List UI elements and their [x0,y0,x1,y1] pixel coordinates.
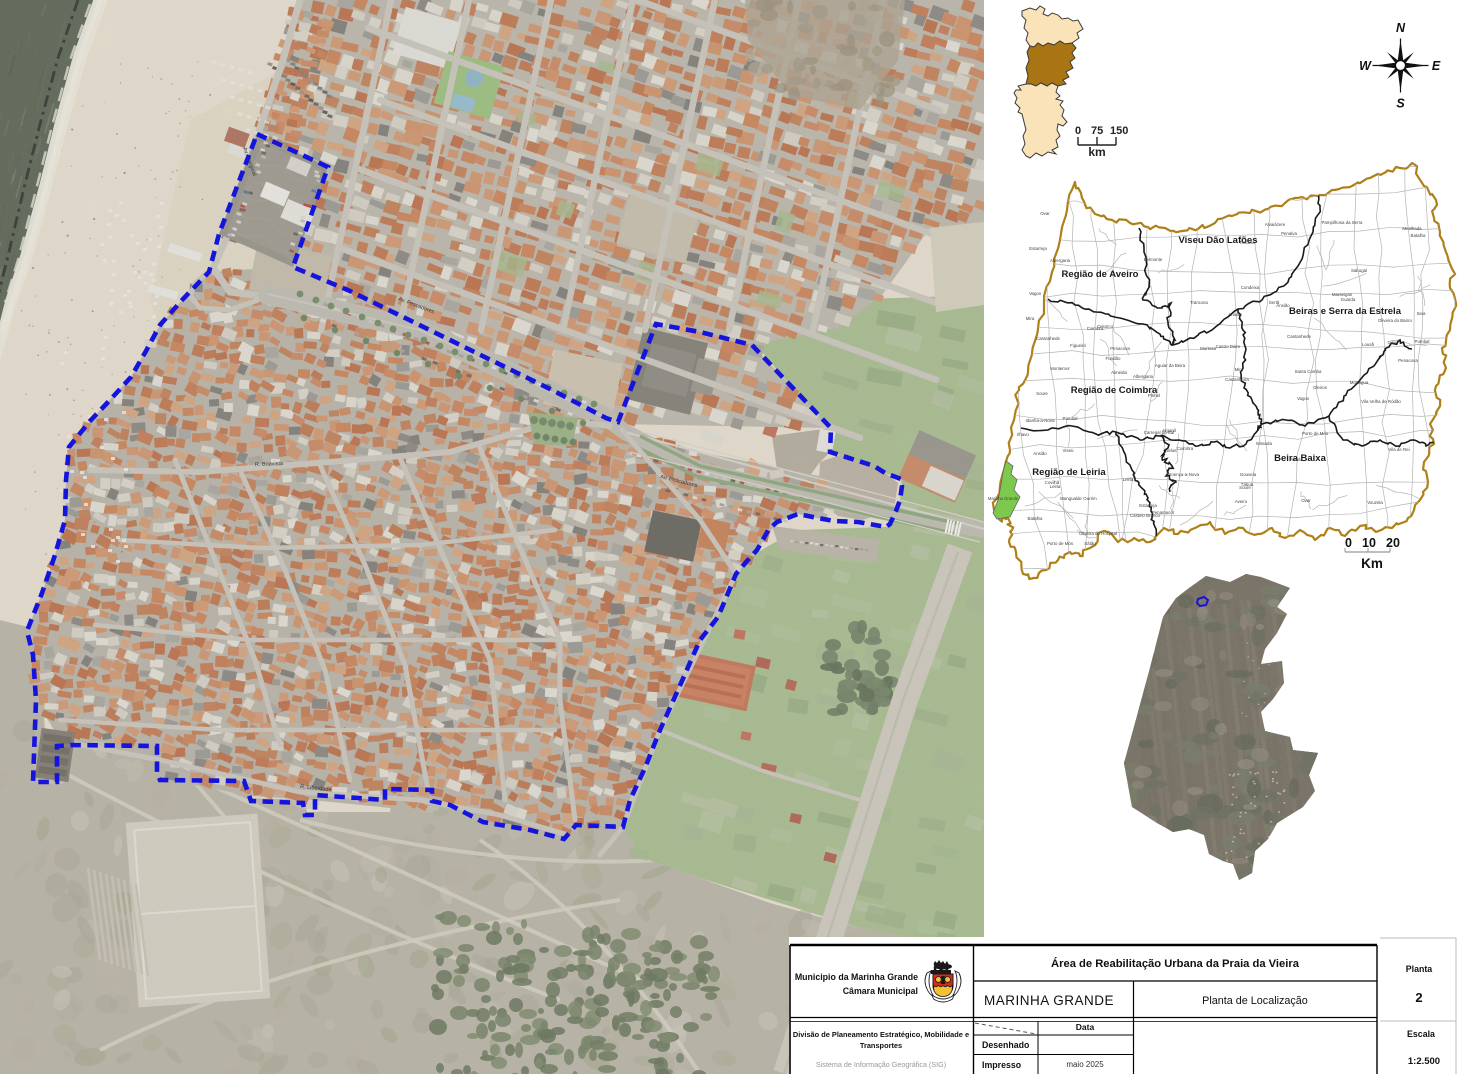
svg-text:Mira: Mira [1026,316,1035,321]
svg-text:1:2.500: 1:2.500 [1408,1056,1440,1067]
svg-text:Miranda: Miranda [1256,441,1272,446]
svg-text:Sistema de Informação Geográfi: Sistema de Informação Geográfica (SIG) [816,1060,946,1069]
svg-text:Leiria: Leiria [1123,477,1134,482]
svg-text:0: 0 [1345,536,1352,550]
svg-text:Castanheira: Castanheira [1225,377,1249,382]
svg-text:Sabugal: Sabugal [1351,268,1367,273]
svg-text:0: 0 [1075,125,1081,137]
svg-text:Idanha-a-Nova: Idanha-a-Nova [1025,418,1055,423]
svg-text:Ovar: Ovar [1040,211,1050,216]
svg-text:Penacova: Penacova [1398,358,1418,363]
svg-text:150: 150 [1110,125,1128,137]
svg-text:Câmara Municipal: Câmara Municipal [843,986,918,996]
svg-text:Figueiró: Figueiró [1070,343,1086,348]
svg-text:Área de Reabilitação Urbana da: Área de Reabilitação Urbana da Praia da … [1051,957,1300,970]
svg-text:Porto de Mós: Porto de Mós [1047,541,1074,546]
svg-text:Lousã: Lousã [1362,342,1375,347]
svg-text:km: km [1088,145,1105,159]
svg-text:Mealhada: Mealhada [1402,226,1422,231]
svg-text:Cantanhede: Cantanhede [1036,336,1060,341]
svg-text:Pampilhosa da Serra: Pampilhosa da Serra [1321,220,1363,225]
svg-text:Alvaiázere: Alvaiázere [1265,222,1286,227]
svg-text:Pinhel: Pinhel [1148,393,1160,398]
svg-text:maio 2025: maio 2025 [1066,1060,1104,1069]
svg-text:Vouzela: Vouzela [1367,500,1383,505]
svg-text:Km: Km [1361,556,1383,571]
svg-text:Aveiro: Aveiro [1235,499,1248,504]
svg-text:Cantanhede: Cantanhede [1287,334,1311,339]
svg-text:Estarreja: Estarreja [1139,503,1157,508]
svg-text:Ilhavo: Ilhavo [1017,432,1029,437]
svg-text:Tondela: Tondela [1239,240,1255,245]
svg-text:Condeixa: Condeixa [1241,285,1260,290]
svg-text:E: E [1432,59,1441,73]
svg-text:Municipio da Marinha Grande: Municipio da Marinha Grande [795,972,918,982]
svg-text:Impresso: Impresso [982,1060,1022,1070]
svg-text:Batalha: Batalha [1028,516,1043,521]
svg-text:N: N [1396,21,1406,35]
svg-text:Pombal: Pombal [1063,416,1078,421]
svg-text:Castro Daire: Castro Daire [1216,344,1241,349]
svg-text:10: 10 [1362,536,1376,550]
svg-text:Góis: Góis [1387,340,1397,345]
svg-text:Região de Leiria: Região de Leiria [1032,467,1106,478]
svg-text:2: 2 [1415,990,1422,1005]
svg-text:Guarda: Guarda [1341,297,1356,302]
svg-text:Ansião: Ansião [1033,451,1047,456]
svg-text:Vagos: Vagos [1297,396,1310,401]
svg-text:Ourém: Ourém [1083,496,1097,501]
svg-text:75: 75 [1091,125,1103,137]
svg-text:Batalha: Batalha [1411,233,1426,238]
svg-text:Belmonte: Belmonte [1144,257,1163,262]
svg-text:Santa Comba: Santa Comba [1295,369,1322,374]
svg-text:Divisão de Planeamento Estraté: Divisão de Planeamento Estratégico, Mobi… [793,1030,969,1039]
svg-text:Vila de Rei: Vila de Rei [1388,447,1409,452]
svg-text:Penela: Penela [1289,457,1303,462]
svg-text:Castelo Branco: Castelo Branco [1130,513,1161,518]
svg-text:Tábua: Tábua [1241,482,1254,487]
svg-text:Pombal: Pombal [1415,339,1430,344]
svg-text:Coimbra: Coimbra [1177,446,1194,451]
svg-text:Albergaria: Albergaria [1050,258,1071,263]
svg-text:Transportes: Transportes [860,1041,902,1050]
svg-text:Mangualde: Mangualde [1060,496,1082,501]
svg-text:Ovar: Ovar [1301,498,1311,503]
svg-text:Montemor: Montemor [1050,366,1070,371]
svg-text:Murtosa: Murtosa [1200,346,1216,351]
svg-text:Proença-a-Nova: Proença-a-Nova [1167,472,1200,477]
svg-text:Seia: Seia [1417,311,1426,316]
svg-text:MARINHA GRANDE: MARINHA GRANDE [984,993,1114,1008]
svg-text:Região de Coimbra: Região de Coimbra [1071,385,1158,396]
svg-text:Porto de Mós: Porto de Mós [1302,431,1329,436]
svg-text:S: S [1396,97,1405,111]
svg-text:Penalva: Penalva [1281,231,1297,236]
svg-text:Marinha Grande: Marinha Grande [988,496,1019,501]
svg-text:Fundão: Fundão [1106,356,1121,361]
svg-text:Anadia: Anadia [1228,312,1242,317]
svg-text:Oliveira do Hospital: Oliveira do Hospital [1079,531,1117,536]
svg-text:Gouveia: Gouveia [1240,472,1257,477]
svg-text:Desenhado: Desenhado [982,1040,1030,1050]
svg-text:W: W [1359,59,1372,73]
svg-text:Oleiros: Oleiros [1313,385,1328,390]
svg-text:Vila Velha de Ródão: Vila Velha de Ródão [1361,399,1401,404]
svg-text:Viseu: Viseu [1063,448,1074,453]
svg-text:Data: Data [1076,1022,1095,1032]
svg-text:Almeida: Almeida [1111,370,1127,375]
svg-text:Albergaria: Albergaria [1133,374,1154,379]
svg-text:Manteigas: Manteigas [1332,292,1353,297]
svg-text:Planta: Planta [1406,964,1433,974]
svg-text:Mortágua: Mortágua [1350,380,1369,385]
svg-text:Nelas: Nelas [1165,448,1177,453]
svg-text:Beiras e Serra da Estrela: Beiras e Serra da Estrela [1289,306,1402,317]
svg-text:Sertã: Sertã [1269,300,1280,305]
svg-text:Aguiar da Beira: Aguiar da Beira [1155,363,1186,368]
svg-text:Planta de Localização: Planta de Localização [1202,995,1308,1007]
svg-text:20: 20 [1386,536,1400,550]
svg-text:Região de Aveiro: Região de Aveiro [1062,269,1139,280]
svg-text:Sátão: Sátão [1084,541,1096,546]
svg-text:Escala: Escala [1407,1029,1435,1039]
svg-text:Coimbra: Coimbra [1087,326,1104,331]
svg-text:Arganil: Arganil [1162,428,1176,433]
svg-text:Vagos: Vagos [1029,291,1042,296]
svg-text:Soure: Soure [1036,391,1048,396]
svg-text:Penacova: Penacova [1110,346,1130,351]
svg-text:Trancoso: Trancoso [1190,300,1209,305]
svg-text:Oliveira do Bairro: Oliveira do Bairro [1378,318,1412,323]
svg-text:Mira: Mira [1235,367,1244,372]
svg-text:Leiria: Leiria [1050,484,1061,489]
svg-text:Estarreja: Estarreja [1029,246,1047,251]
